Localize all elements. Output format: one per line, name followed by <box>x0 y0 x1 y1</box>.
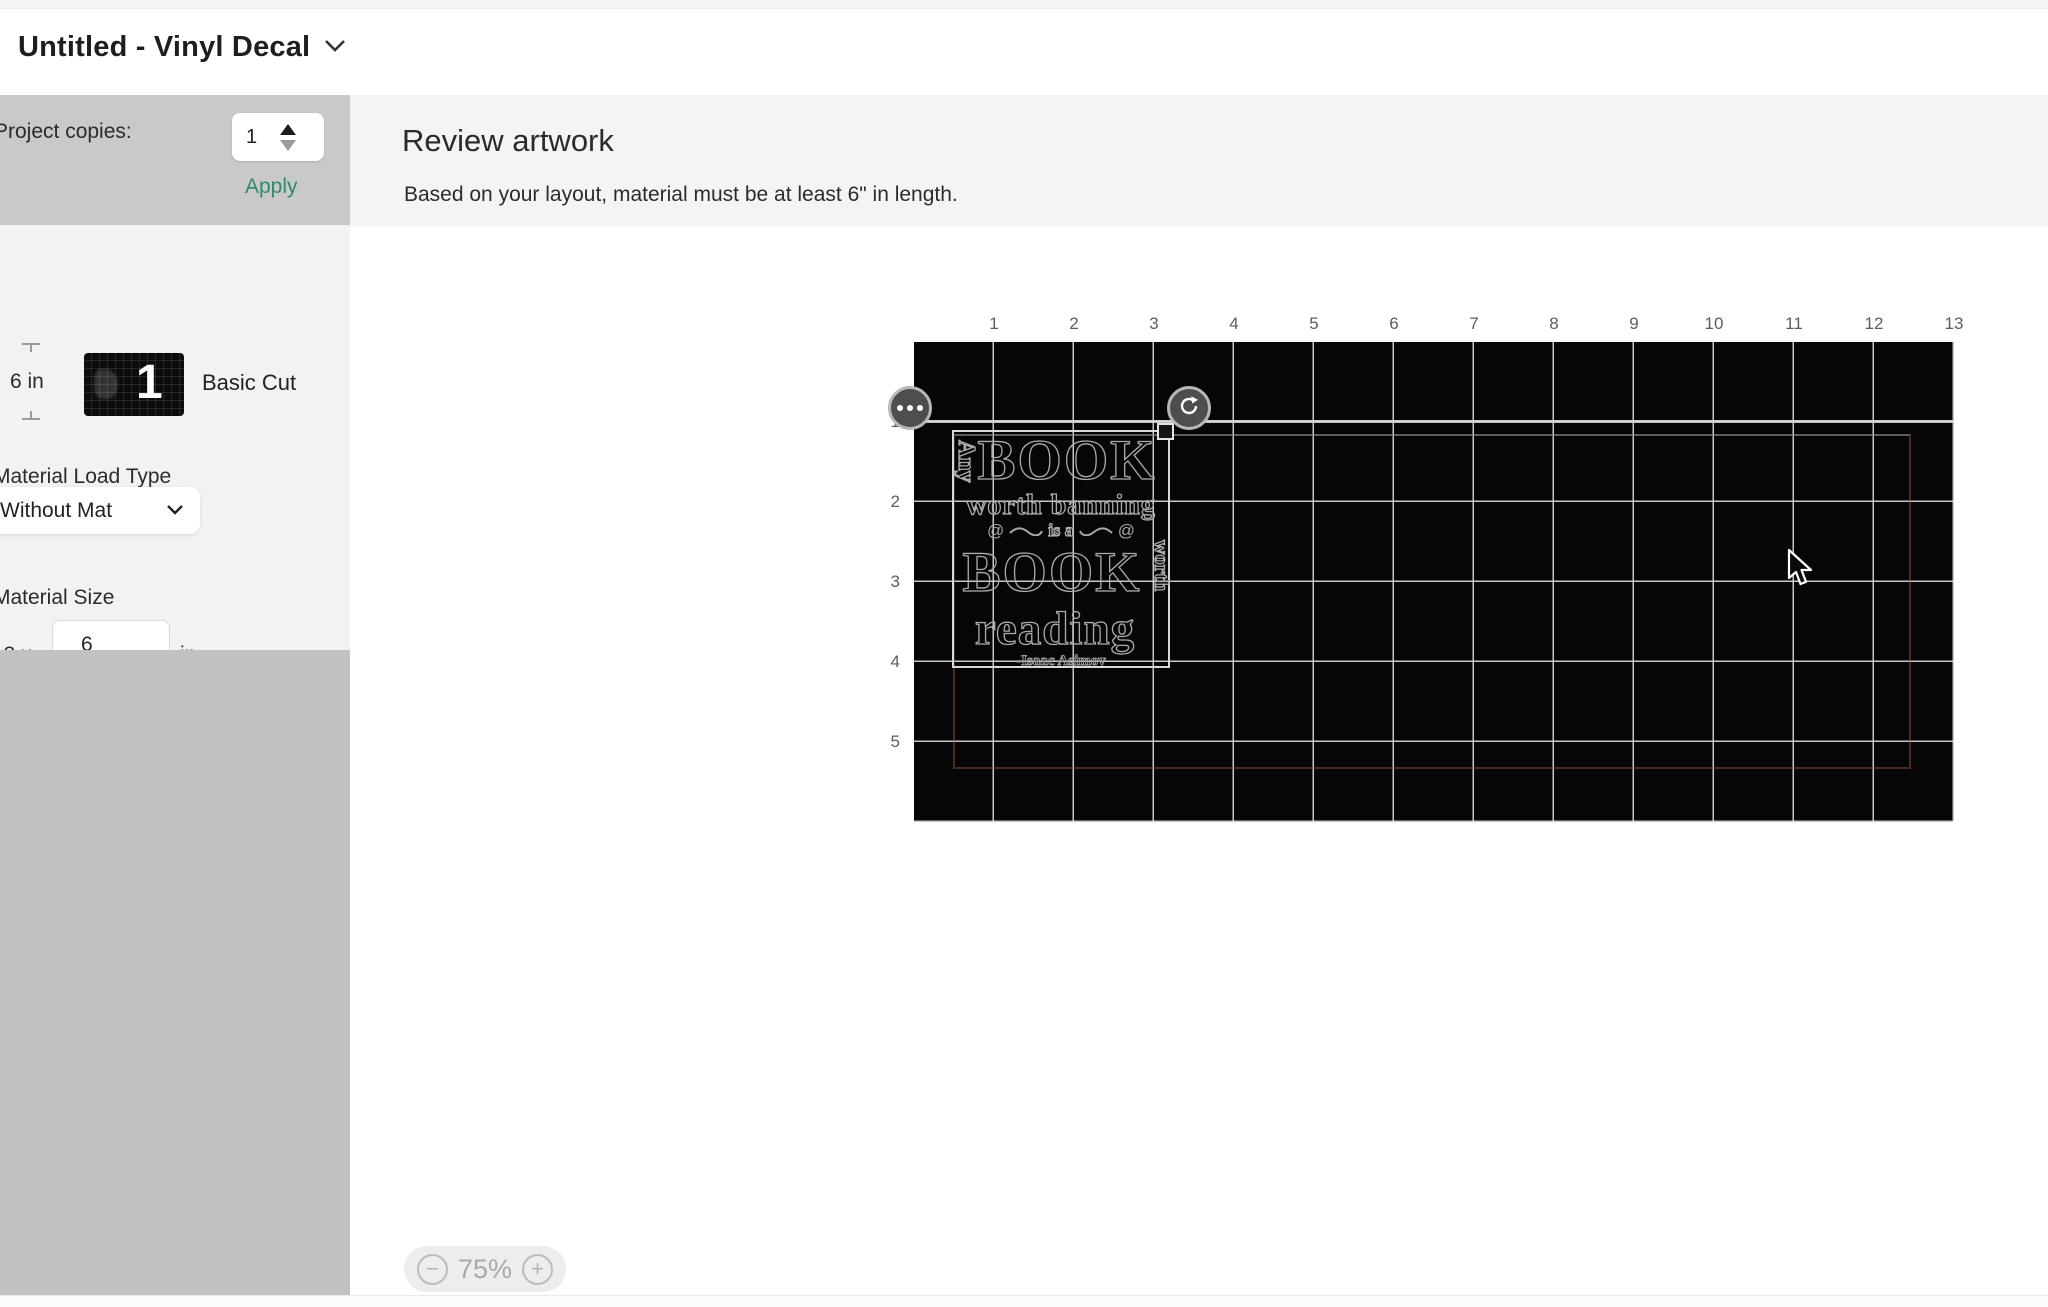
app-root: Untitled - Vinyl Decal Project copies: A… <box>0 0 2048 1307</box>
dot-icon <box>907 405 913 411</box>
apply-button[interactable]: Apply <box>245 175 298 199</box>
dot-icon <box>917 405 923 411</box>
zoom-level: 75% <box>458 1254 512 1285</box>
ruler-tick: 1 <box>989 314 998 334</box>
copies-input[interactable] <box>232 126 278 149</box>
rotate-button[interactable] <box>1167 386 1211 430</box>
material-settings-section: 6 in 1 Basic Cut Material Load Type With… <box>0 225 350 650</box>
selection-resize-handle[interactable] <box>1157 423 1174 440</box>
artwork-selection[interactable]: Any BOOK worth banning @ is a @ BOOK wor… <box>952 430 1170 668</box>
artwork-text-is-a: is a <box>1048 520 1074 541</box>
zoom-out-button[interactable]: − <box>417 1254 448 1285</box>
ruler-tick: 7 <box>1469 314 1478 334</box>
artwork-text-book-top: BOOK <box>968 428 1166 493</box>
chevron-down-icon <box>324 39 346 57</box>
dot-icon <box>897 405 903 411</box>
artwork-text-worth-banning: worth banning <box>956 490 1166 522</box>
material-load-type-label: Material Load Type <box>0 465 171 489</box>
copies-increment-button[interactable] <box>280 124 296 135</box>
artwork-mini-preview <box>94 369 118 399</box>
sidebar-lower-panel <box>0 650 350 1295</box>
ruler-tick: 13 <box>1945 314 1964 334</box>
zoom-in-button[interactable]: + <box>522 1254 553 1285</box>
artwork-ornament-row: @ is a @ <box>954 520 1168 541</box>
ruler-tick: 11 <box>1785 314 1803 334</box>
page-title: Review artwork <box>402 123 614 159</box>
material-length-readout: 6 in <box>10 370 44 394</box>
ruler-tick: 5 <box>1309 314 1318 334</box>
bottom-strip <box>0 1295 2048 1307</box>
page-subtitle: Based on your layout, material must be a… <box>404 183 958 207</box>
material-load-type-select[interactable]: Without Mat <box>0 487 200 534</box>
ruler-tick: 4 <box>1229 314 1238 334</box>
ruler-tick: 3 <box>891 572 900 592</box>
project-copies-label: Project copies: <box>0 120 132 144</box>
measure-top-tick-icon <box>22 343 40 352</box>
review-header: Review artwork Based on your layout, mat… <box>350 95 2048 227</box>
sidebar: Project copies: Apply 6 in 1 Basic Cut M… <box>0 95 350 1307</box>
ruler-tick: 4 <box>891 652 900 672</box>
ruler-tick: 9 <box>1629 314 1638 334</box>
ruler-tick: 10 <box>1705 314 1724 334</box>
copies-stepper[interactable] <box>232 113 324 161</box>
mouse-cursor <box>1787 548 1815 593</box>
project-copies-section: Project copies: Apply <box>0 95 350 225</box>
top-strip <box>0 0 2048 9</box>
mat-number: 1 <box>136 355 163 410</box>
rotate-icon <box>1177 394 1201 423</box>
mat-preview-thumbnail[interactable]: 1 <box>84 353 184 416</box>
ruler-tick: 6 <box>1389 314 1398 334</box>
material-load-type-value: Without Mat <box>0 499 112 523</box>
artwork-text-book-bottom: BOOK <box>956 540 1148 605</box>
project-title-dropdown[interactable]: Untitled - Vinyl Decal <box>18 31 346 64</box>
ruler-tick: 2 <box>1069 314 1078 334</box>
wave-ornament-icon <box>1008 526 1044 536</box>
copies-decrement-button[interactable] <box>280 140 296 151</box>
measure-bottom-tick-icon <box>22 411 40 420</box>
artwork-text-author: -Isaac Asimov <box>954 653 1168 670</box>
artwork-text-reading: reading <box>956 602 1154 656</box>
project-title: Untitled - Vinyl Decal <box>18 31 310 64</box>
ruler-tick: 5 <box>891 732 900 752</box>
zoom-control: − 75% + <box>404 1246 566 1292</box>
swirl-ornament-icon: @ <box>987 521 1004 541</box>
material-size-label: Material Size <box>0 586 114 610</box>
ruler-tick: 8 <box>1549 314 1558 334</box>
chevron-down-icon <box>166 502 184 520</box>
more-options-button[interactable] <box>888 386 932 430</box>
ruler-tick: 12 <box>1865 314 1884 334</box>
swirl-ornament-icon: @ <box>1118 521 1135 541</box>
wave-ornament-icon <box>1078 526 1114 536</box>
ruler-top: 1 2 3 4 5 6 7 8 9 10 11 12 13 <box>914 314 1954 338</box>
grid-line-emphasis <box>914 420 1954 423</box>
artwork-text-worth-vertical: worth <box>1149 540 1172 591</box>
titlebar: Untitled - Vinyl Decal <box>0 9 2048 95</box>
ruler-tick: 3 <box>1149 314 1158 334</box>
cut-type-label: Basic Cut <box>202 370 296 396</box>
ruler-tick: 2 <box>891 492 900 512</box>
